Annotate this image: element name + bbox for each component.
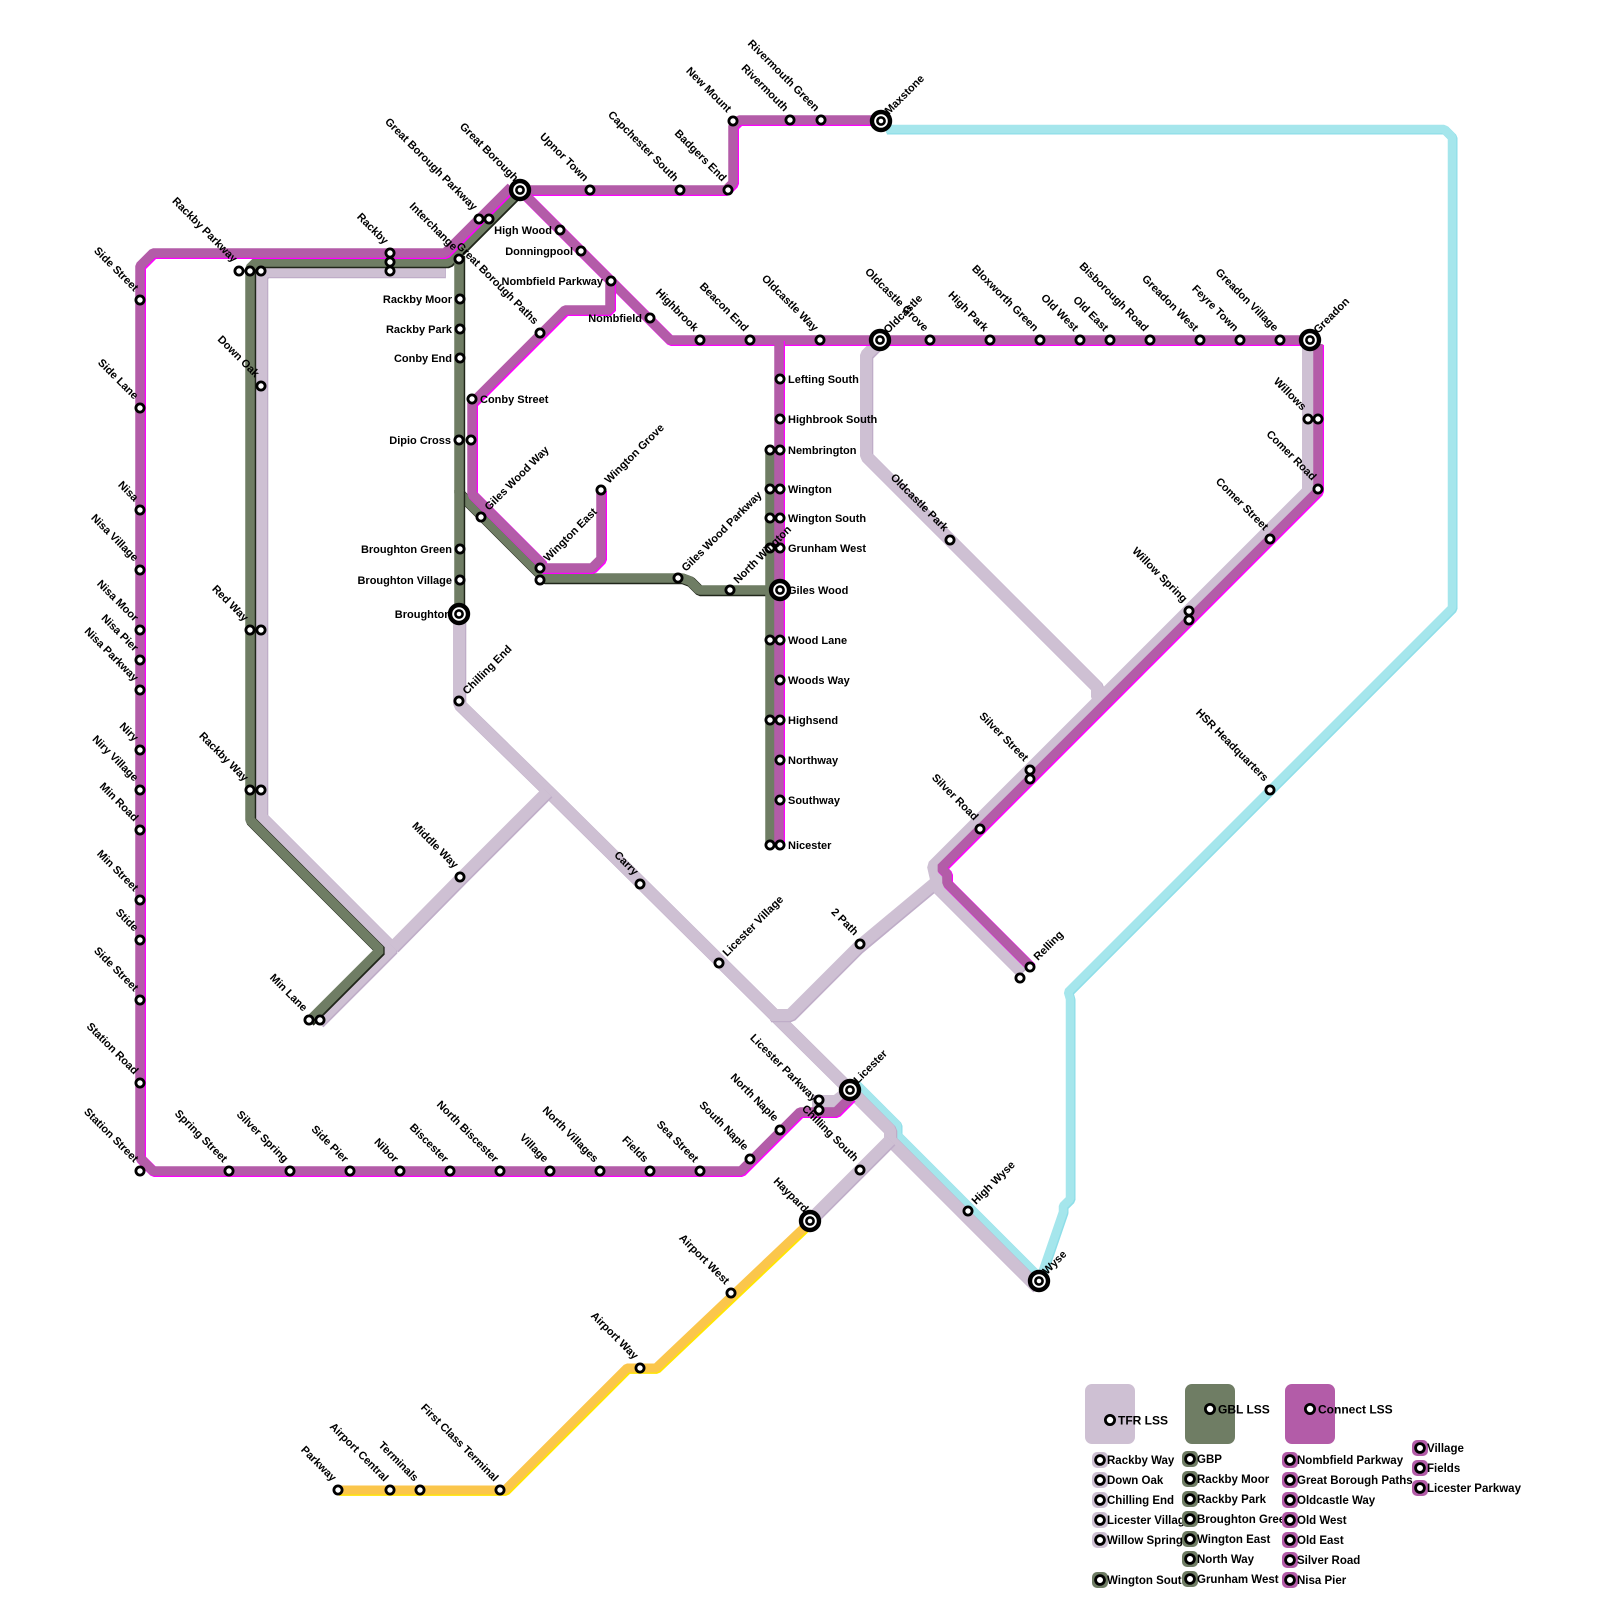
svg-text:Giles Wood: Giles Wood: [788, 585, 848, 597]
svg-text:Broughton Green: Broughton Green: [361, 544, 452, 556]
svg-text:Broughton: Broughton: [395, 609, 451, 621]
svg-text:Chilling End: Chilling End: [1107, 1495, 1174, 1507]
svg-text:Nombfield: Nombfield: [588, 313, 642, 325]
svg-text:North Way: North Way: [1197, 1554, 1255, 1566]
svg-text:GBP: GBP: [1197, 1454, 1222, 1466]
svg-text:Dipio Cross: Dipio Cross: [389, 435, 451, 447]
svg-text:Conby Street: Conby Street: [480, 394, 549, 406]
svg-text:Donningpool: Donningpool: [505, 246, 573, 258]
svg-text:Old East: Old East: [1297, 1535, 1344, 1547]
svg-text:Wington South: Wington South: [788, 513, 866, 525]
svg-text:Rackby Park: Rackby Park: [386, 324, 453, 336]
svg-text:Licester Parkway: Licester Parkway: [1427, 1483, 1522, 1495]
svg-text:Broughton Green: Broughton Green: [1197, 1514, 1292, 1526]
svg-text:Wington East: Wington East: [1197, 1534, 1271, 1546]
svg-text:Nicester: Nicester: [788, 840, 832, 852]
svg-text:Rackby Moor: Rackby Moor: [1197, 1474, 1270, 1486]
svg-text:Nembrington: Nembrington: [788, 445, 857, 457]
svg-text:TFR LSS: TFR LSS: [1118, 1414, 1168, 1428]
svg-text:Highsend: Highsend: [788, 715, 838, 727]
svg-text:Lefting South: Lefting South: [788, 374, 859, 386]
svg-text:Silver Road: Silver Road: [1297, 1555, 1360, 1567]
svg-text:Wington South: Wington South: [1107, 1575, 1189, 1587]
svg-text:Woods Way: Woods Way: [788, 675, 851, 687]
svg-text:Old West: Old West: [1297, 1515, 1347, 1527]
svg-text:Wood Lane: Wood Lane: [788, 635, 847, 647]
svg-text:GBL LSS: GBL LSS: [1218, 1403, 1270, 1417]
svg-text:Down Oak: Down Oak: [1107, 1475, 1164, 1487]
svg-text:Rackby Park: Rackby Park: [1197, 1494, 1267, 1506]
svg-text:Village: Village: [1427, 1443, 1464, 1455]
svg-text:Conby End: Conby End: [394, 353, 452, 365]
svg-text:Connect LSS: Connect LSS: [1318, 1403, 1393, 1417]
svg-text:Nombfield Parkway: Nombfield Parkway: [1297, 1455, 1404, 1467]
svg-text:Nisa Pier: Nisa Pier: [1297, 1575, 1347, 1587]
svg-text:Wington: Wington: [788, 484, 832, 496]
svg-text:Southway: Southway: [788, 795, 841, 807]
svg-text:Licester Village: Licester Village: [1107, 1515, 1191, 1527]
svg-text:Grunham West: Grunham West: [1197, 1574, 1279, 1586]
svg-text:Rackby Moor: Rackby Moor: [383, 294, 453, 306]
svg-text:Oldcastle Way: Oldcastle Way: [1297, 1495, 1376, 1507]
svg-text:Fields: Fields: [1427, 1463, 1460, 1475]
svg-text:Great Borough Paths: Great Borough Paths: [1297, 1475, 1413, 1487]
svg-text:Rackby Way: Rackby Way: [1107, 1455, 1175, 1467]
svg-text:Nombfield Parkway: Nombfield Parkway: [502, 276, 604, 288]
svg-text:Broughton Village: Broughton Village: [357, 575, 452, 587]
svg-text:High Wood: High Wood: [494, 225, 552, 237]
svg-text:Grunham West: Grunham West: [788, 543, 866, 555]
svg-text:Northway: Northway: [788, 755, 839, 767]
svg-text:Highbrook South: Highbrook South: [788, 414, 877, 426]
svg-text:Willow Spring: Willow Spring: [1107, 1535, 1183, 1547]
